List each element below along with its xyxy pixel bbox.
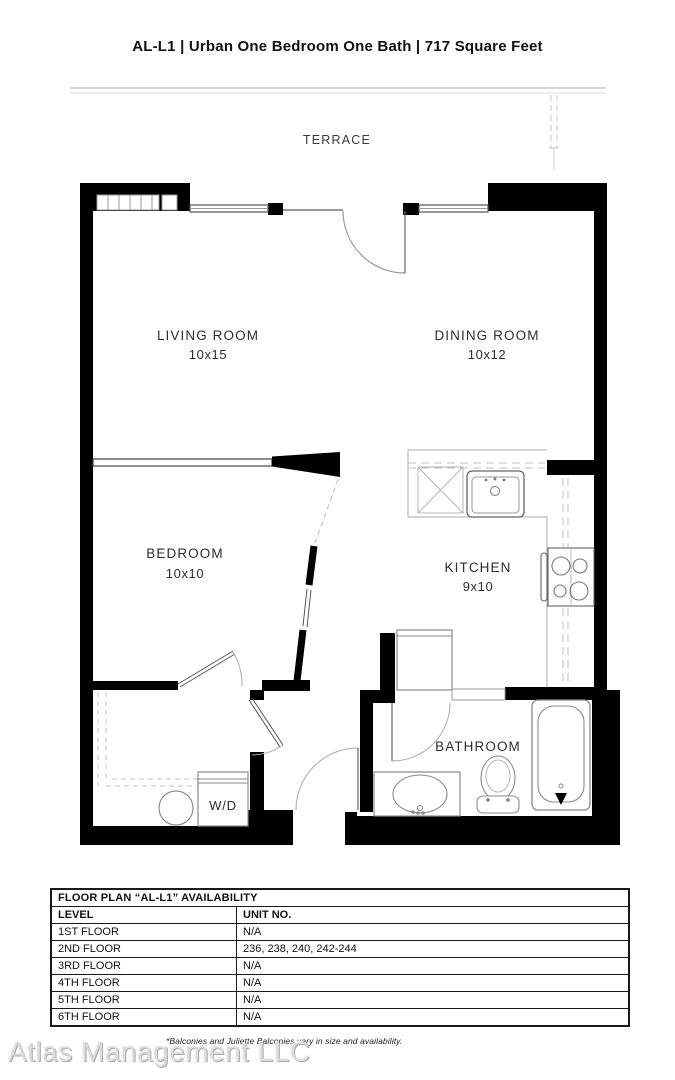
bedroom-label: BEDROOM bbox=[146, 546, 223, 561]
living-room-label: LIVING ROOM bbox=[157, 328, 259, 343]
terrace-edge bbox=[70, 88, 606, 170]
table-row: 5TH FLOOR N/A bbox=[51, 992, 629, 1009]
table-row: 6TH FLOOR N/A bbox=[51, 1009, 629, 1027]
column-header-unit: UNIT NO. bbox=[237, 907, 630, 924]
laundry-basket bbox=[159, 791, 193, 825]
bedroom-dims: 10x10 bbox=[166, 566, 204, 581]
closet-door bbox=[249, 698, 283, 755]
angled-wall bbox=[272, 452, 340, 477]
closet-wall bbox=[250, 752, 264, 812]
wd-label: W/D bbox=[209, 798, 237, 813]
dining-room-dims: 10x12 bbox=[468, 347, 506, 362]
level-cell: 4TH FLOOR bbox=[51, 975, 237, 992]
living-room-dims: 10x15 bbox=[189, 347, 227, 362]
unit-cell: N/A bbox=[237, 924, 630, 941]
availability-table: FLOOR PLAN “AL-L1” AVAILABILITY LEVEL UN… bbox=[50, 888, 630, 1027]
column-header-level: LEVEL bbox=[51, 907, 237, 924]
level-cell: 5TH FLOOR bbox=[51, 992, 237, 1009]
window-living-room bbox=[190, 205, 268, 212]
unit-cell: N/A bbox=[237, 958, 630, 975]
bathroom-label: BATHROOM bbox=[435, 739, 521, 754]
baseboard-heater bbox=[97, 195, 177, 210]
table-header-row: LEVEL UNIT NO. bbox=[51, 907, 629, 924]
floor-plan-page: AL-L1 | Urban One Bedroom One Bath | 717… bbox=[0, 0, 675, 1080]
level-cell: 1ST FLOOR bbox=[51, 924, 237, 941]
kitchen-dims: 9x10 bbox=[463, 579, 494, 594]
table-row: 4TH FLOOR N/A bbox=[51, 975, 629, 992]
level-cell: 3RD FLOOR bbox=[51, 958, 237, 975]
bedroom-door bbox=[178, 651, 242, 687]
company-watermark: Atlas Management LLC bbox=[8, 1036, 311, 1068]
unit-cell: 236, 238, 240, 242-244 bbox=[237, 941, 630, 958]
floor-plan-drawing: TERRACE bbox=[0, 0, 675, 870]
kitchen-sink bbox=[467, 471, 524, 517]
wall-niche bbox=[452, 689, 505, 700]
dining-room-label: DINING ROOM bbox=[434, 328, 539, 343]
table-row: 2ND FLOOR 236, 238, 240, 242-244 bbox=[51, 941, 629, 958]
unit-cell: N/A bbox=[237, 975, 630, 992]
toilet bbox=[477, 756, 519, 813]
bedroom-wall bbox=[93, 681, 178, 690]
dishwasher bbox=[418, 467, 463, 513]
vanity-sink bbox=[374, 772, 460, 816]
table-title: FLOOR PLAN “AL-L1” AVAILABILITY bbox=[51, 889, 629, 907]
table-row: 1ST FLOOR N/A bbox=[51, 924, 629, 941]
hall-wall bbox=[262, 680, 310, 691]
table-row: 3RD FLOOR N/A bbox=[51, 958, 629, 975]
level-cell: 2ND FLOOR bbox=[51, 941, 237, 958]
terrace-door bbox=[343, 211, 405, 273]
bathtub bbox=[532, 700, 590, 810]
kitchen-label: KITCHEN bbox=[445, 560, 512, 575]
bedroom-partition-wall bbox=[93, 459, 272, 466]
window-dining-room bbox=[419, 205, 488, 212]
table-title-row: FLOOR PLAN “AL-L1” AVAILABILITY bbox=[51, 889, 629, 907]
oven-handle bbox=[541, 553, 547, 601]
stove bbox=[541, 548, 594, 606]
unit-cell: N/A bbox=[237, 1009, 630, 1027]
kitchen-wall-stub bbox=[547, 460, 607, 475]
entry-door bbox=[296, 748, 358, 810]
unit-cell: N/A bbox=[237, 992, 630, 1009]
refrigerator bbox=[397, 630, 452, 690]
level-cell: 6TH FLOOR bbox=[51, 1009, 237, 1027]
terrace-label: TERRACE bbox=[303, 133, 371, 147]
bedroom-sliding-door bbox=[297, 479, 338, 681]
